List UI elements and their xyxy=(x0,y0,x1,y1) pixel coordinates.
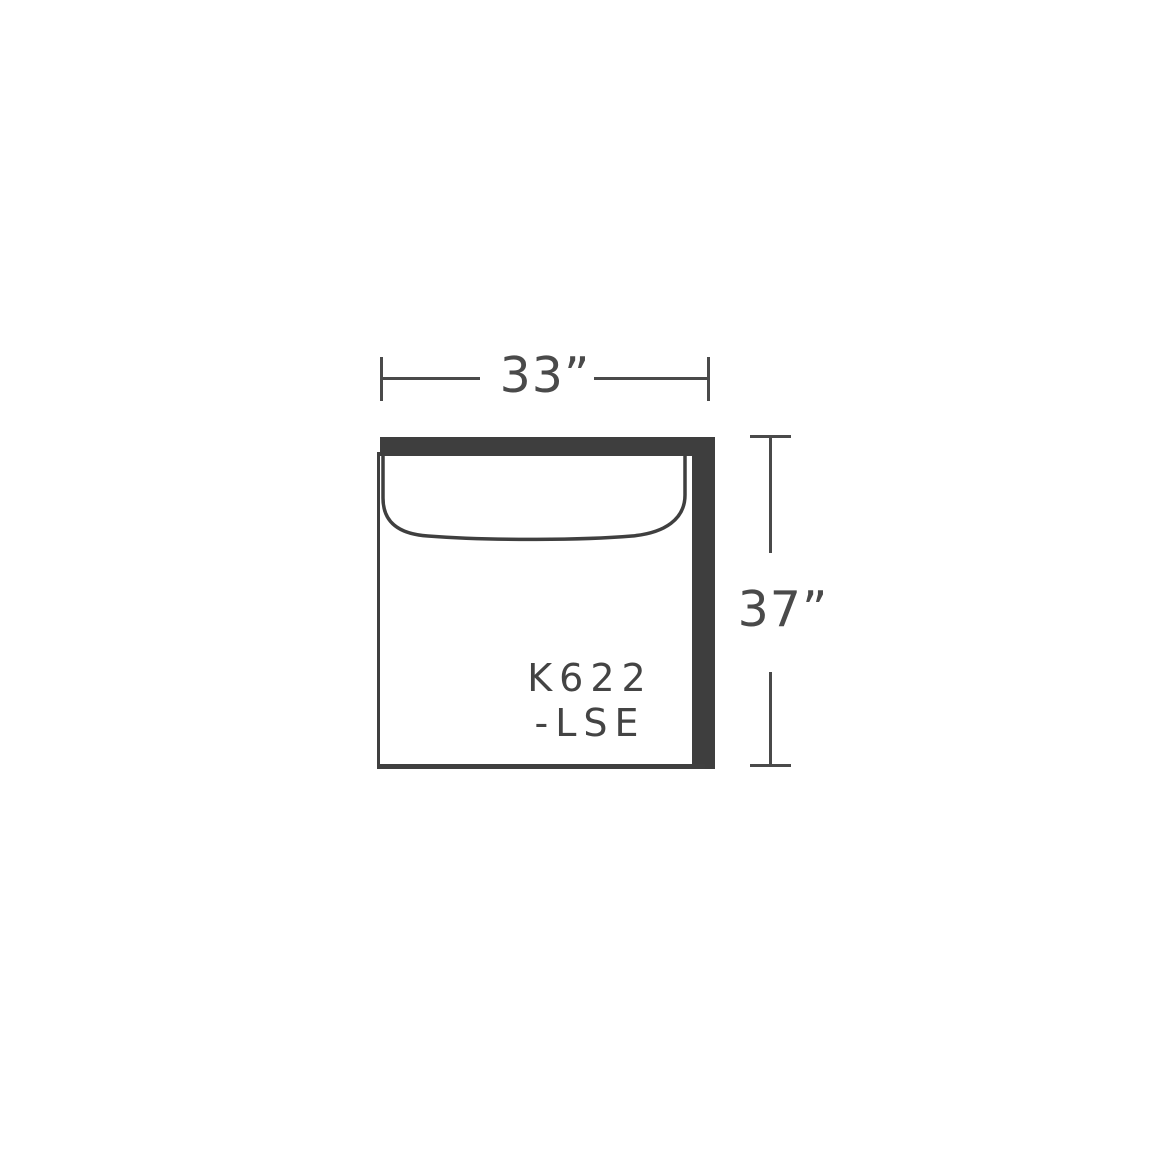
model-code-line1: K622 xyxy=(500,656,680,701)
diagram-canvas: 33” K622 -LSE 37” xyxy=(0,0,1170,1170)
model-label: K622 -LSE xyxy=(500,656,680,746)
seat-cushion-shape xyxy=(381,455,689,547)
sofa-outline-left xyxy=(377,452,380,768)
width-dim-label: 33” xyxy=(455,351,635,401)
sofa-outline-bottom xyxy=(377,764,705,769)
width-dim-line-right xyxy=(594,377,708,380)
sofa-backrest-bar xyxy=(380,437,715,456)
depth-dim-label: 37” xyxy=(703,585,863,635)
seat-cushion-outline xyxy=(383,455,685,539)
model-code-line2: -LSE xyxy=(500,701,680,746)
depth-dim-line-upper xyxy=(769,436,772,553)
depth-dim-line-lower xyxy=(769,672,772,767)
width-dim-right-tick xyxy=(707,357,710,401)
depth-dim-bottom-cap xyxy=(750,764,791,767)
